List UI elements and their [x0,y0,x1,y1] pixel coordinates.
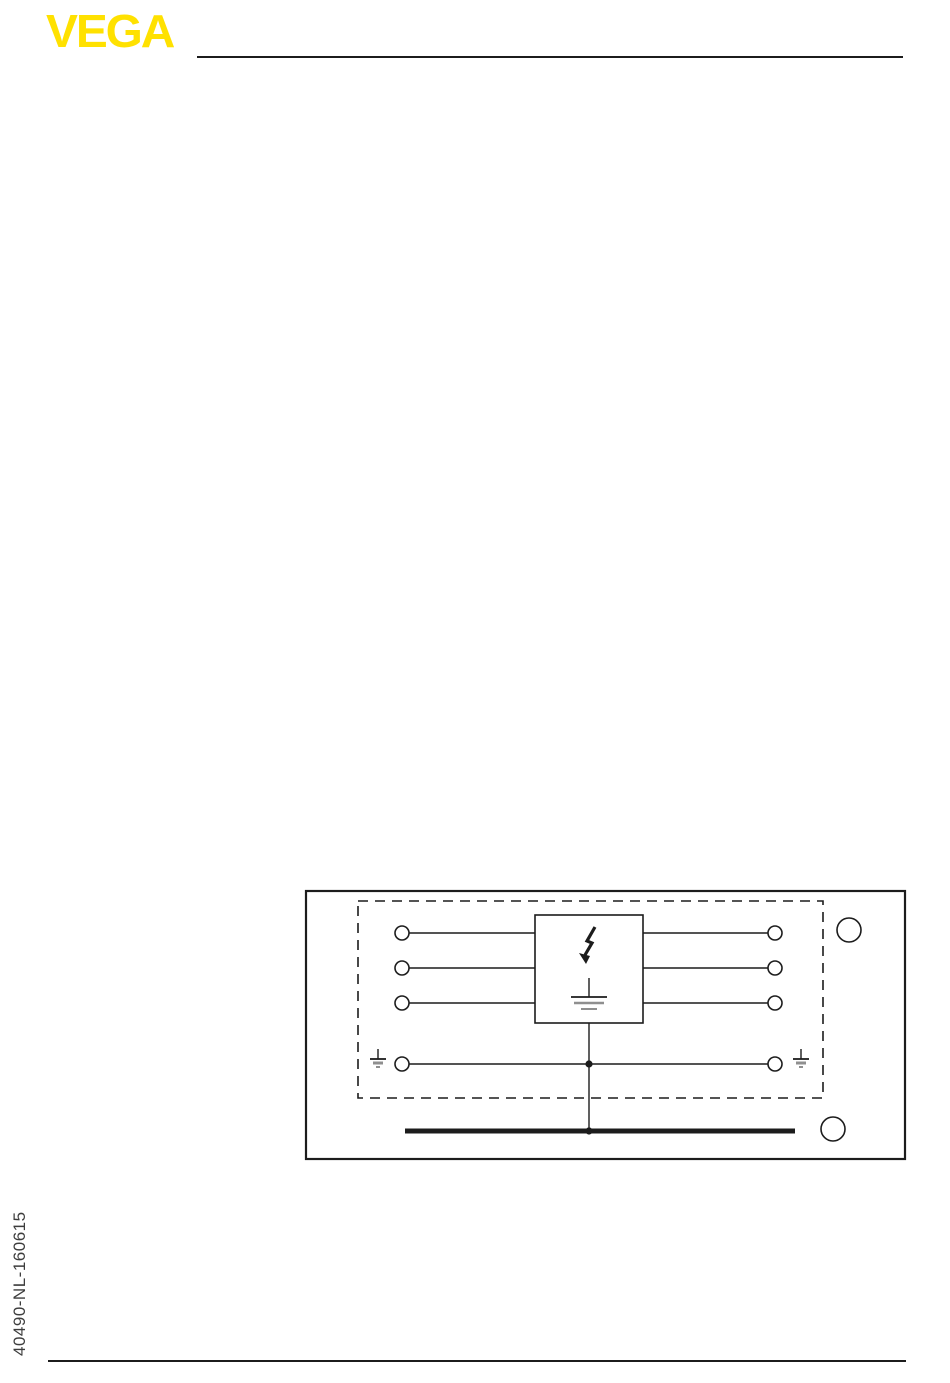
terminal-right-2 [768,961,782,975]
terminal-left-3 [395,996,409,1010]
earth-symbol-right-icon [793,1049,809,1067]
terminal-right-1 [768,926,782,940]
terminal-left-earth [395,1057,409,1071]
wiring-diagram-figure [300,885,910,1165]
earth-symbol-left-icon [370,1049,386,1067]
header-rule [197,56,903,58]
surge-arrester-block [535,915,643,1023]
footer-rule [48,1360,906,1362]
terminal-left-2 [395,961,409,975]
document-number: 40490-NL-160615 [10,1181,30,1356]
terminal-right-3 [768,996,782,1010]
callout-circle-bottom [821,1117,845,1141]
junction-dot-earth-wire [585,1060,592,1067]
terminal-right-earth [768,1057,782,1071]
terminal-left-1 [395,926,409,940]
vega-logo: VEGA [46,8,173,54]
callout-circle-top [837,918,861,942]
